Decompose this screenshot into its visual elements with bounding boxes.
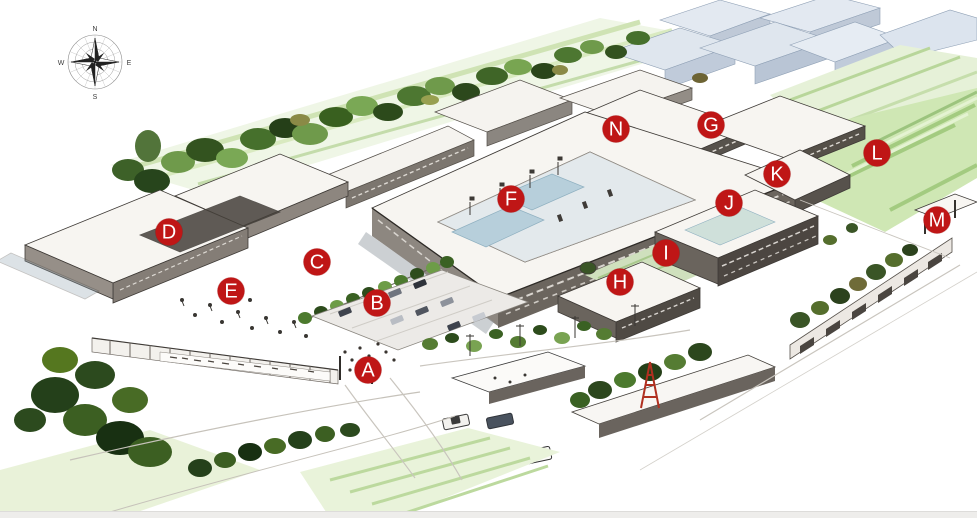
marker-layer: ABCDEFGHIJKLMN: [0, 0, 977, 518]
map-marker-k[interactable]: K: [764, 161, 791, 188]
map-marker-i[interactable]: I: [653, 240, 680, 267]
map-marker-b[interactable]: B: [364, 290, 391, 317]
map-marker-d[interactable]: D: [156, 219, 183, 246]
map-marker-f[interactable]: F: [498, 186, 525, 213]
map-marker-m[interactable]: M: [924, 207, 951, 234]
map-marker-n[interactable]: N: [603, 116, 630, 143]
site-plan: N E S W ABCDEFGHIJKLMN: [0, 0, 977, 518]
map-marker-g[interactable]: G: [698, 112, 725, 139]
map-marker-e[interactable]: E: [218, 278, 245, 305]
map-marker-j[interactable]: J: [716, 190, 743, 217]
map-marker-a[interactable]: A: [355, 357, 382, 384]
map-marker-l[interactable]: L: [864, 140, 891, 167]
map-marker-h[interactable]: H: [607, 269, 634, 296]
map-marker-c[interactable]: C: [304, 249, 331, 276]
